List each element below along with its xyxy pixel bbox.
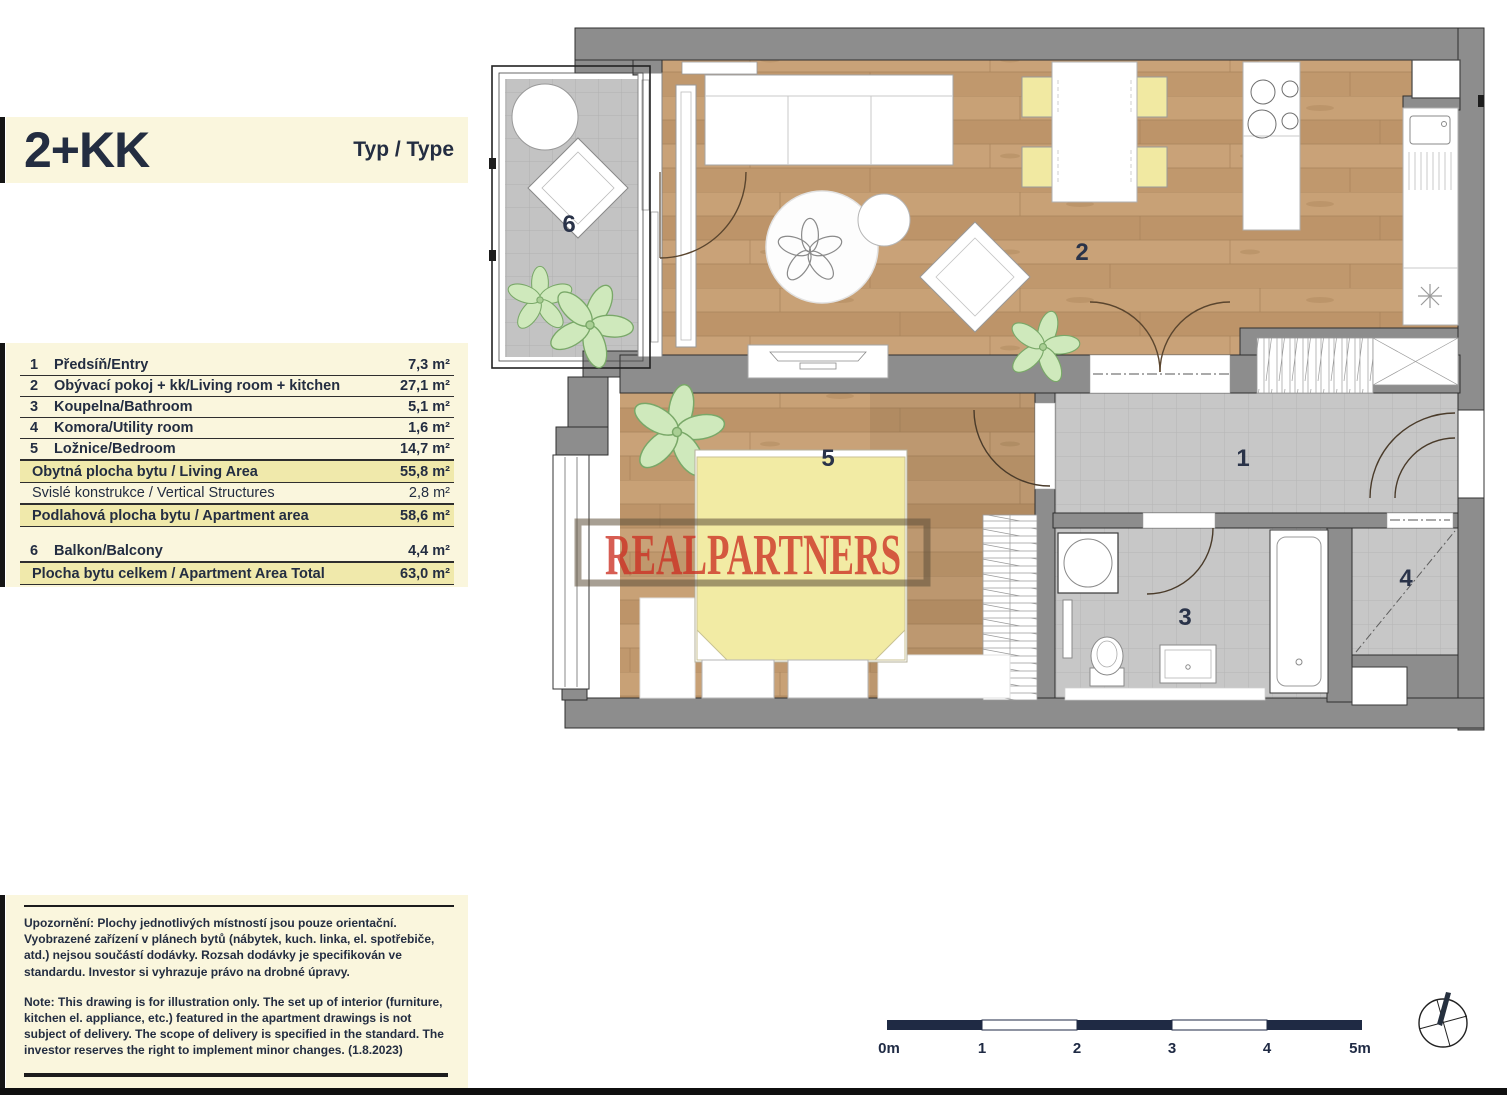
watermark-text: REALPARTNERS — [605, 522, 901, 587]
window-sill — [682, 62, 757, 74]
title-panel: 2+KK Typ / Type — [6, 117, 468, 183]
side-table — [858, 194, 910, 246]
bed-pillow — [788, 660, 868, 698]
watermark: REALPARTNERS — [578, 522, 927, 587]
table-row-living: 2 Obývací pokoj + kk/Living room + kitch… — [20, 376, 454, 397]
bathroom-sink — [1160, 645, 1216, 683]
radiator — [676, 85, 696, 347]
summary-area: 58,6 m² — [400, 508, 454, 524]
room-name: Balkon/Balcony — [54, 543, 408, 559]
room-name: Obývací pokoj + kk/Living room + kitchen — [54, 378, 400, 394]
room-area: 27,1 m² — [400, 378, 454, 394]
bathroom-door-opening — [1143, 513, 1215, 528]
entry-floor — [1055, 393, 1458, 513]
room-label-1: 1 — [1236, 445, 1249, 472]
room-name: Předsíň/Entry — [54, 357, 408, 373]
floor-plan-page: { "header": { "title": "2+KK", "type_lab… — [0, 0, 1507, 1095]
scale-label-2: 2 — [1073, 1040, 1081, 1057]
bedside-rug — [640, 598, 695, 698]
kitchen-island — [1243, 62, 1300, 230]
apartment-type-title: 2+KK — [24, 125, 149, 175]
room-label-3: 3 — [1178, 604, 1191, 631]
type-label: Typ / Type — [353, 138, 454, 162]
room-number: 6 — [20, 543, 54, 559]
apartment-entry-door-opening — [1458, 410, 1484, 498]
room-label-2: 2 — [1075, 239, 1088, 266]
room-area: 7,3 m² — [408, 357, 454, 373]
sofa — [705, 75, 953, 165]
room-name: Ložnice/Bedroom — [54, 441, 400, 457]
disclaimer-panel: Upozornění: Plochy jednotlivých místnost… — [6, 895, 468, 1088]
table-row-bedroom: 5 Ložnice/Bedroom 14,7 m² — [20, 439, 454, 460]
toilet — [1090, 637, 1124, 686]
table-row-apartment-area: Podlahová plocha bytu / Apartment area 5… — [20, 504, 454, 527]
table-row-living-area-total: Obytná plocha bytu / Living Area 55,8 m² — [20, 460, 454, 483]
summary-label: Svislé konstrukce / Vertical Structures — [20, 485, 409, 501]
scale-bar: 0m 1 2 3 4 5m — [878, 1020, 1371, 1057]
divider — [24, 1073, 448, 1077]
room-name: Koupelna/Bathroom — [54, 399, 408, 415]
table-row-utility: 4 Komora/Utility room 1,6 m² — [20, 418, 454, 439]
scale-label-3: 3 — [1168, 1040, 1176, 1057]
bed-pillow — [702, 660, 774, 698]
room-number: 4 — [20, 420, 54, 436]
dining-table — [1052, 62, 1137, 202]
table-row-balcony: 6 Balkon/Balcony 4,4 m² — [20, 541, 454, 562]
disclaimer-english: Note: This drawing is for illustration o… — [24, 994, 454, 1059]
table-row-bathroom: 3 Koupelna/Bathroom 5,1 m² — [20, 397, 454, 418]
table-gap — [6, 527, 468, 541]
table-row-area-total: Plocha bytu celkem / Apartment Area Tota… — [20, 562, 454, 585]
room-area: 1,6 m² — [408, 420, 454, 436]
room-area: 5,1 m² — [408, 399, 454, 415]
room-label-5: 5 — [821, 445, 834, 472]
room-name: Komora/Utility room — [54, 420, 408, 436]
room-label-6: 6 — [562, 211, 575, 238]
room-number: 3 — [20, 399, 54, 415]
tv-cabinet — [748, 345, 888, 378]
room-label-4: 4 — [1399, 565, 1413, 592]
summary-label: Obytná plocha bytu / Living Area — [20, 464, 400, 480]
disclaimer-czech: Upozornění: Plochy jednotlivých místnost… — [24, 915, 454, 980]
scale-label-5: 5m — [1349, 1040, 1371, 1057]
compass-icon — [1419, 992, 1467, 1047]
freezer-symbol — [1418, 284, 1442, 308]
summary-area: 55,8 m² — [400, 464, 454, 480]
wardrobe-corner — [1373, 338, 1458, 385]
table-row-entry: 1 Předsíň/Entry 7,3 m² — [20, 355, 454, 376]
divider — [24, 905, 454, 907]
room-number: 2 — [20, 378, 54, 394]
scale-label-0: 0m — [878, 1040, 900, 1057]
kitchen-sink — [1410, 116, 1450, 144]
bathtub — [1270, 530, 1328, 693]
utility-cabinet — [1352, 667, 1407, 705]
room-number: 5 — [20, 441, 54, 457]
room-area: 4,4 m² — [408, 543, 454, 559]
scale-label-1: 1 — [978, 1040, 986, 1057]
bathroom-radiator — [1063, 600, 1072, 658]
tall-cabinet — [1412, 60, 1460, 98]
balcony-table — [512, 84, 578, 150]
room-number: 1 — [20, 357, 54, 373]
summary-area: 63,0 m² — [400, 566, 454, 582]
washing-machine — [1058, 533, 1118, 593]
bedroom-window — [553, 455, 589, 689]
room-area: 14,7 m² — [400, 441, 454, 457]
table-row-vertical-structures: Svislé konstrukce / Vertical Structures … — [20, 483, 454, 504]
summary-area: 2,8 m² — [409, 485, 454, 501]
summary-label: Plocha bytu celkem / Apartment Area Tota… — [20, 566, 400, 582]
summary-label: Podlahová plocha bytu / Apartment area — [20, 508, 400, 524]
wardrobe-sliding — [1257, 338, 1373, 393]
area-table-panel: 1 Předsíň/Entry 7,3 m² 2 Obývací pokoj +… — [6, 343, 468, 587]
shower-strip — [1065, 688, 1265, 700]
scale-label-4: 4 — [1263, 1040, 1272, 1057]
bedroom-door-opening — [1035, 403, 1055, 489]
